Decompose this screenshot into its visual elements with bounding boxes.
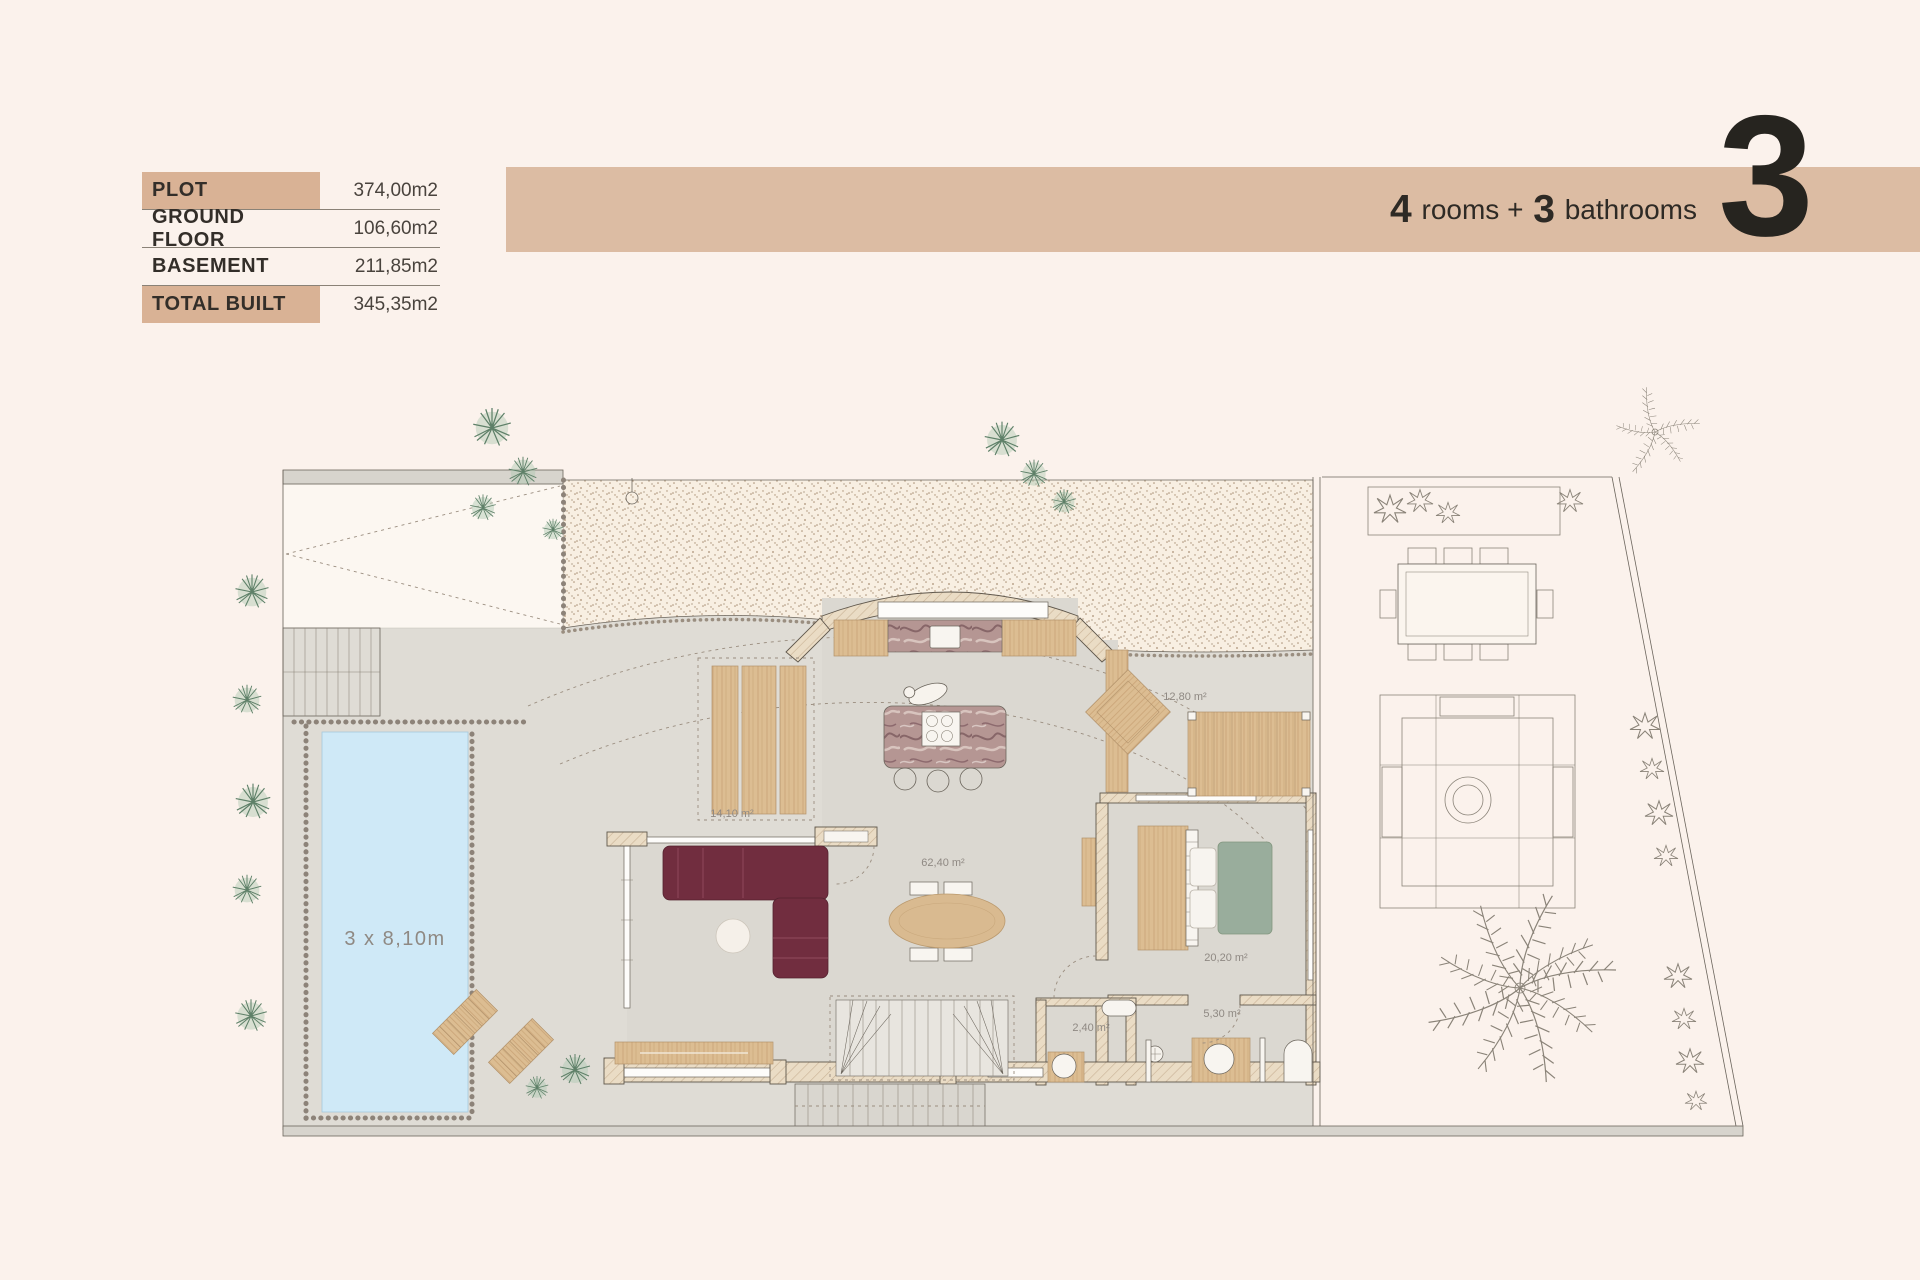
pool-size-label: 3 x 8,10m bbox=[344, 928, 445, 950]
row-label: GROUND FLOOR bbox=[142, 210, 320, 247]
brochure-page: 3 x 8,10m bbox=[0, 0, 1920, 1280]
row-value: 374,00m2 bbox=[353, 172, 440, 209]
pergola-lounge bbox=[1380, 695, 1575, 908]
rooms-label: rooms + bbox=[1414, 194, 1531, 226]
row-value: 345,35m2 bbox=[353, 286, 440, 323]
small-palm bbox=[1615, 387, 1700, 474]
bathrooms-label: bathrooms bbox=[1557, 194, 1697, 226]
basement-staircase bbox=[795, 1084, 985, 1128]
area-label-terrace-east: 12,80 m² bbox=[1163, 691, 1207, 703]
palm-tree bbox=[1425, 891, 1616, 1084]
area-label-living: 62,40 m² bbox=[921, 857, 965, 869]
row-value: 106,60m2 bbox=[353, 210, 440, 247]
table-row: GROUND FLOOR 106,60m2 bbox=[142, 210, 440, 248]
area-label-terrace-west: 14,10 m² bbox=[710, 808, 754, 820]
unit-number: 3 bbox=[1694, 90, 1834, 262]
row-value: 211,85m2 bbox=[355, 248, 440, 285]
rooms-count: 4 bbox=[1390, 188, 1412, 232]
interior-staircase bbox=[830, 996, 1014, 1080]
row-label: BASEMENT bbox=[142, 248, 320, 285]
table-row: PLOT 374,00m2 bbox=[142, 172, 440, 210]
right-garden bbox=[1313, 387, 1743, 1130]
plot-south-wall bbox=[283, 1126, 1743, 1136]
area-summary-table: PLOT 374,00m2 GROUND FLOOR 106,60m2 BASE… bbox=[142, 172, 440, 323]
coffee-table bbox=[716, 919, 750, 953]
table-row: TOTAL BUILT 345,35m2 bbox=[142, 286, 440, 323]
rooms-bathrooms-summary: 4 rooms + 3 bathrooms bbox=[1388, 167, 1697, 252]
area-label-bedroom: 20,20 m² bbox=[1204, 952, 1248, 964]
row-label: TOTAL BUILT bbox=[142, 286, 320, 323]
area-label-bathroom: 5,30 m² bbox=[1203, 1008, 1241, 1020]
bathrooms-count: 3 bbox=[1533, 188, 1555, 232]
area-label-wc: 2,40 m² bbox=[1072, 1022, 1110, 1034]
garden-dining-set bbox=[1380, 548, 1553, 660]
table-row: BASEMENT 211,85m2 bbox=[142, 248, 440, 286]
terrace-west: 14,10 m² bbox=[698, 658, 814, 820]
row-label: PLOT bbox=[142, 172, 320, 209]
